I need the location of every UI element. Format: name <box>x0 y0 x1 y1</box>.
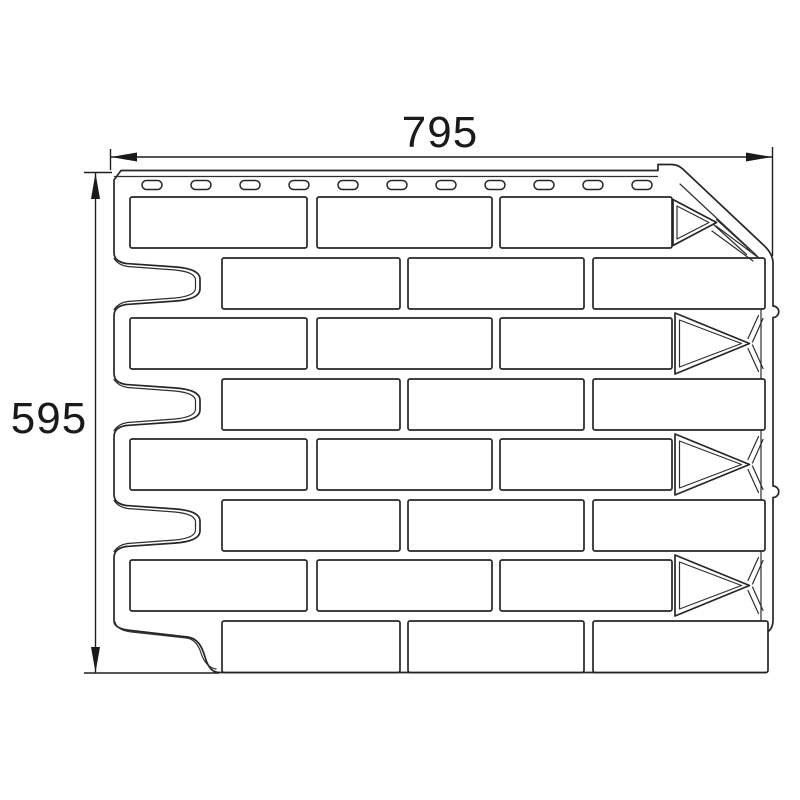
brick <box>317 197 492 248</box>
height-dimension-label: 595 <box>11 394 87 443</box>
brick <box>130 197 307 248</box>
brick <box>500 318 672 369</box>
brick <box>222 379 400 430</box>
nail-slot <box>583 181 603 190</box>
dim-arrow-bottom <box>91 647 100 673</box>
arrow-tail-line <box>712 220 758 262</box>
nail-slot <box>534 181 554 190</box>
drawing-canvas: 795 595 <box>0 0 800 800</box>
dim-arrow-right <box>746 153 772 162</box>
brick <box>408 500 584 551</box>
brick <box>593 258 765 309</box>
dim-arrow-top <box>91 173 100 199</box>
brick <box>317 560 492 611</box>
nail-slots <box>142 181 652 190</box>
brick-arrow-tip <box>673 200 717 246</box>
nail-slot <box>632 181 652 190</box>
dim-arrow-left <box>111 153 137 162</box>
nail-slot <box>436 181 456 190</box>
panel <box>114 165 779 673</box>
brick <box>317 318 492 369</box>
brick <box>500 560 672 611</box>
brick <box>222 258 400 309</box>
brick <box>222 500 400 551</box>
brick <box>130 318 307 369</box>
brick <box>593 621 768 673</box>
bricks <box>130 197 768 673</box>
brick <box>593 379 765 430</box>
brick <box>317 439 492 490</box>
nail-slot <box>289 181 309 190</box>
brick <box>130 560 307 611</box>
nail-slot <box>387 181 407 190</box>
nail-slot <box>338 181 358 190</box>
nail-slot <box>240 181 260 190</box>
brick <box>408 621 584 673</box>
nail-slot <box>485 181 505 190</box>
brick <box>408 379 584 430</box>
brick <box>130 439 307 490</box>
brick <box>500 439 672 490</box>
brick <box>593 500 765 551</box>
nail-slot <box>191 181 211 190</box>
nail-slot <box>142 181 162 190</box>
width-dimension-label: 795 <box>402 108 478 157</box>
brick <box>500 197 672 248</box>
brick <box>222 621 400 673</box>
brick <box>408 258 584 309</box>
facade-panel-drawing: 795 595 <box>0 0 800 800</box>
